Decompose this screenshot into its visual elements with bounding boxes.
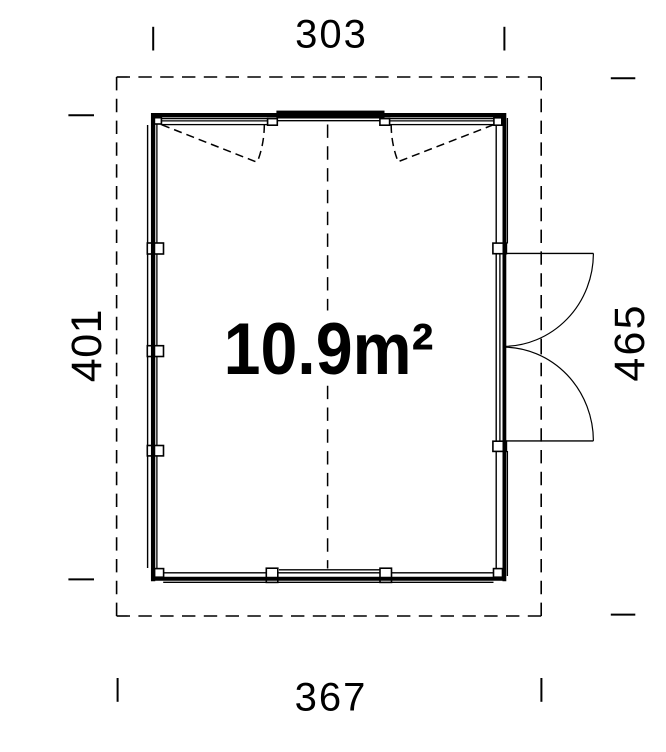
svg-text:401: 401: [63, 309, 111, 382]
svg-text:303: 303: [295, 12, 368, 56]
svg-text:465: 465: [606, 303, 654, 381]
svg-text:10.9m²: 10.9m²: [224, 309, 434, 390]
svg-text:367: 367: [295, 676, 368, 720]
